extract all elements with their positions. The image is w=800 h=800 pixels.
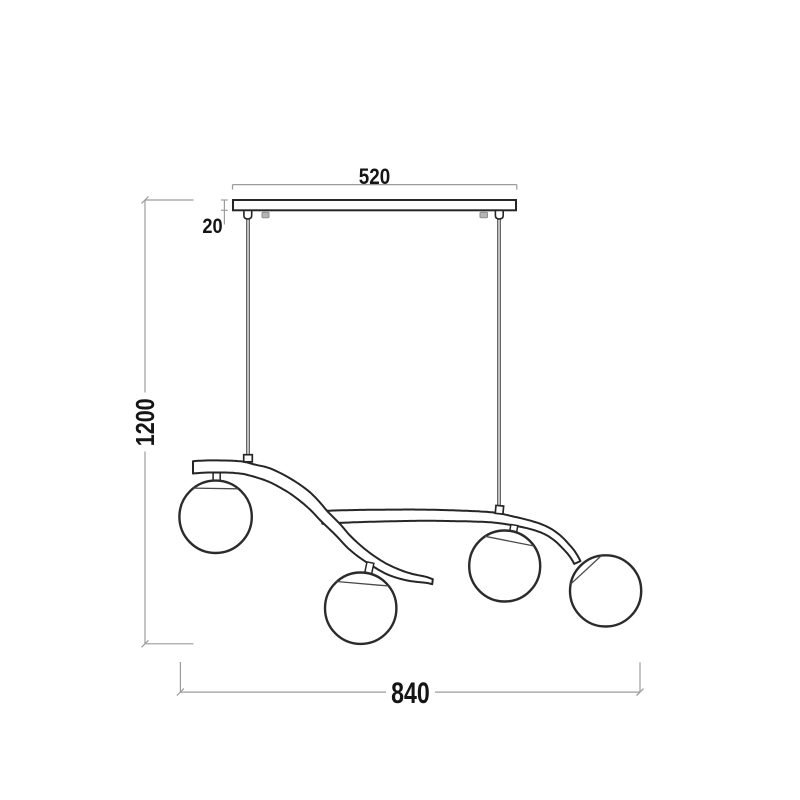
svg-text:20: 20 xyxy=(202,214,222,238)
svg-text:520: 520 xyxy=(359,164,390,189)
svg-text:1200: 1200 xyxy=(130,398,160,446)
svg-text:840: 840 xyxy=(391,677,430,710)
